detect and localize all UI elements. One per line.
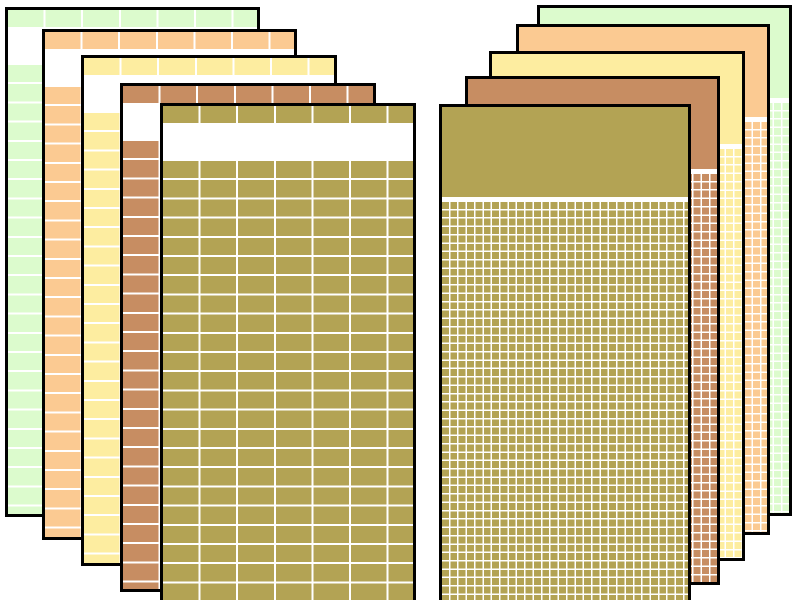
fine-cell-grid [442,202,688,600]
coarse-cell-grid [163,161,413,600]
sheet-header-row [8,10,257,27]
sheet-header-block [442,107,688,197]
desktop-canvas [0,0,800,600]
sheet-header-row [84,58,334,75]
sheet-window-right-olive[interactable] [439,104,691,600]
sheet-header-row [45,32,294,49]
sheet-header-row [123,86,373,103]
sheet-window-left-olive[interactable] [160,103,416,600]
sheet-header-row [163,106,413,123]
empty-rows-band [163,123,413,161]
